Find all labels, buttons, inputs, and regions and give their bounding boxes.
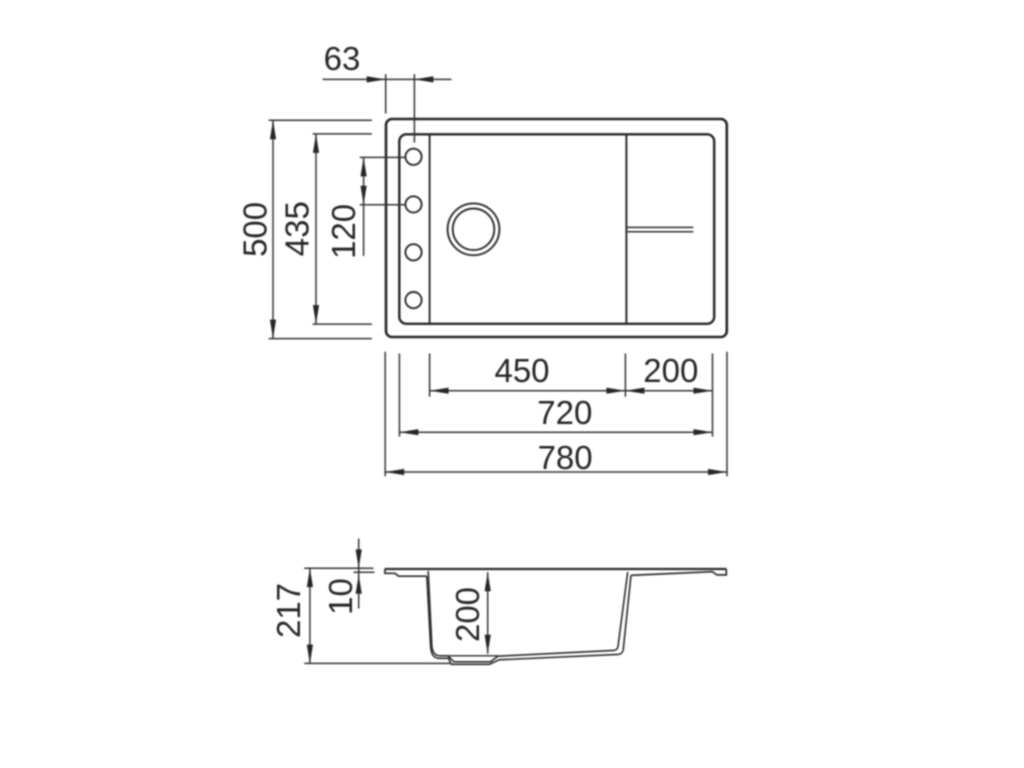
svg-text:720: 720: [537, 394, 592, 431]
svg-text:120: 120: [325, 204, 362, 259]
svg-text:63: 63: [324, 40, 361, 77]
svg-text:780: 780: [538, 439, 593, 476]
svg-text:500: 500: [237, 202, 274, 257]
svg-text:217: 217: [270, 583, 307, 638]
svg-text:435: 435: [279, 201, 316, 256]
svg-text:10: 10: [322, 578, 359, 615]
svg-text:200: 200: [449, 587, 486, 642]
svg-text:200: 200: [643, 352, 698, 389]
svg-text:450: 450: [494, 352, 549, 389]
